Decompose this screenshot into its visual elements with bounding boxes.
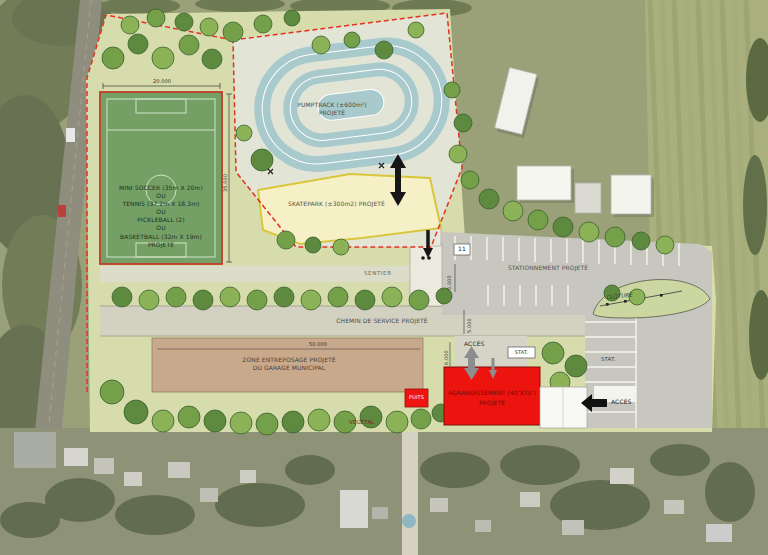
pumptrack-label: PUMPTRACK (±600m²) PROJETÉ xyxy=(272,101,392,118)
vehicle xyxy=(66,128,75,142)
stationnement-label: STATIONNEMENT PROJETÉ xyxy=(498,264,598,272)
driveway xyxy=(402,430,418,555)
neighborhood xyxy=(0,428,768,555)
stat-top-label: STAT. xyxy=(508,349,535,356)
pool xyxy=(402,514,416,528)
vegetal-label: VÉGÉTAL xyxy=(349,419,374,427)
dim-road-width: 5.000 xyxy=(466,318,473,333)
field-label: MINI SOCCER (35m X 20m) OU TENNIS (37.2m… xyxy=(102,184,220,249)
acces-top-label: ACCÈS xyxy=(464,340,484,348)
acces-east-label: ACCÈS xyxy=(611,398,631,406)
skatepark-label: SKATEPARK (±300m2) PROJETÉ xyxy=(288,200,448,208)
dim-field-height: 35.000 xyxy=(222,174,229,192)
building-label: AGRANDISSEMENT (40'X70') PROJETÉ xyxy=(441,388,543,407)
site-plan: MINI SOCCER (35m X 20m) OU TENNIS (37.2m… xyxy=(0,0,768,555)
dim-field-width: 20.000 xyxy=(142,78,182,85)
vehicle xyxy=(58,205,66,217)
dim-path-width: 5.000 xyxy=(446,275,453,290)
stat-right-label: STAT. xyxy=(601,356,616,364)
storage-label: ZONE ENTREPOSAGE PROJETÉ DU GARAGE MUNIC… xyxy=(222,356,356,373)
chemin-label: CHEMIN DE SERVICE PROJETÉ xyxy=(330,317,434,325)
dim-storage-width: 50.000 xyxy=(298,341,338,348)
stall-count-label: 11 xyxy=(454,245,470,253)
existing-garage xyxy=(540,387,587,428)
dim-acces-width: 6.000 xyxy=(443,350,450,365)
puits-label: PUITS xyxy=(405,394,428,401)
sentier-label: SENTIER xyxy=(364,270,392,278)
